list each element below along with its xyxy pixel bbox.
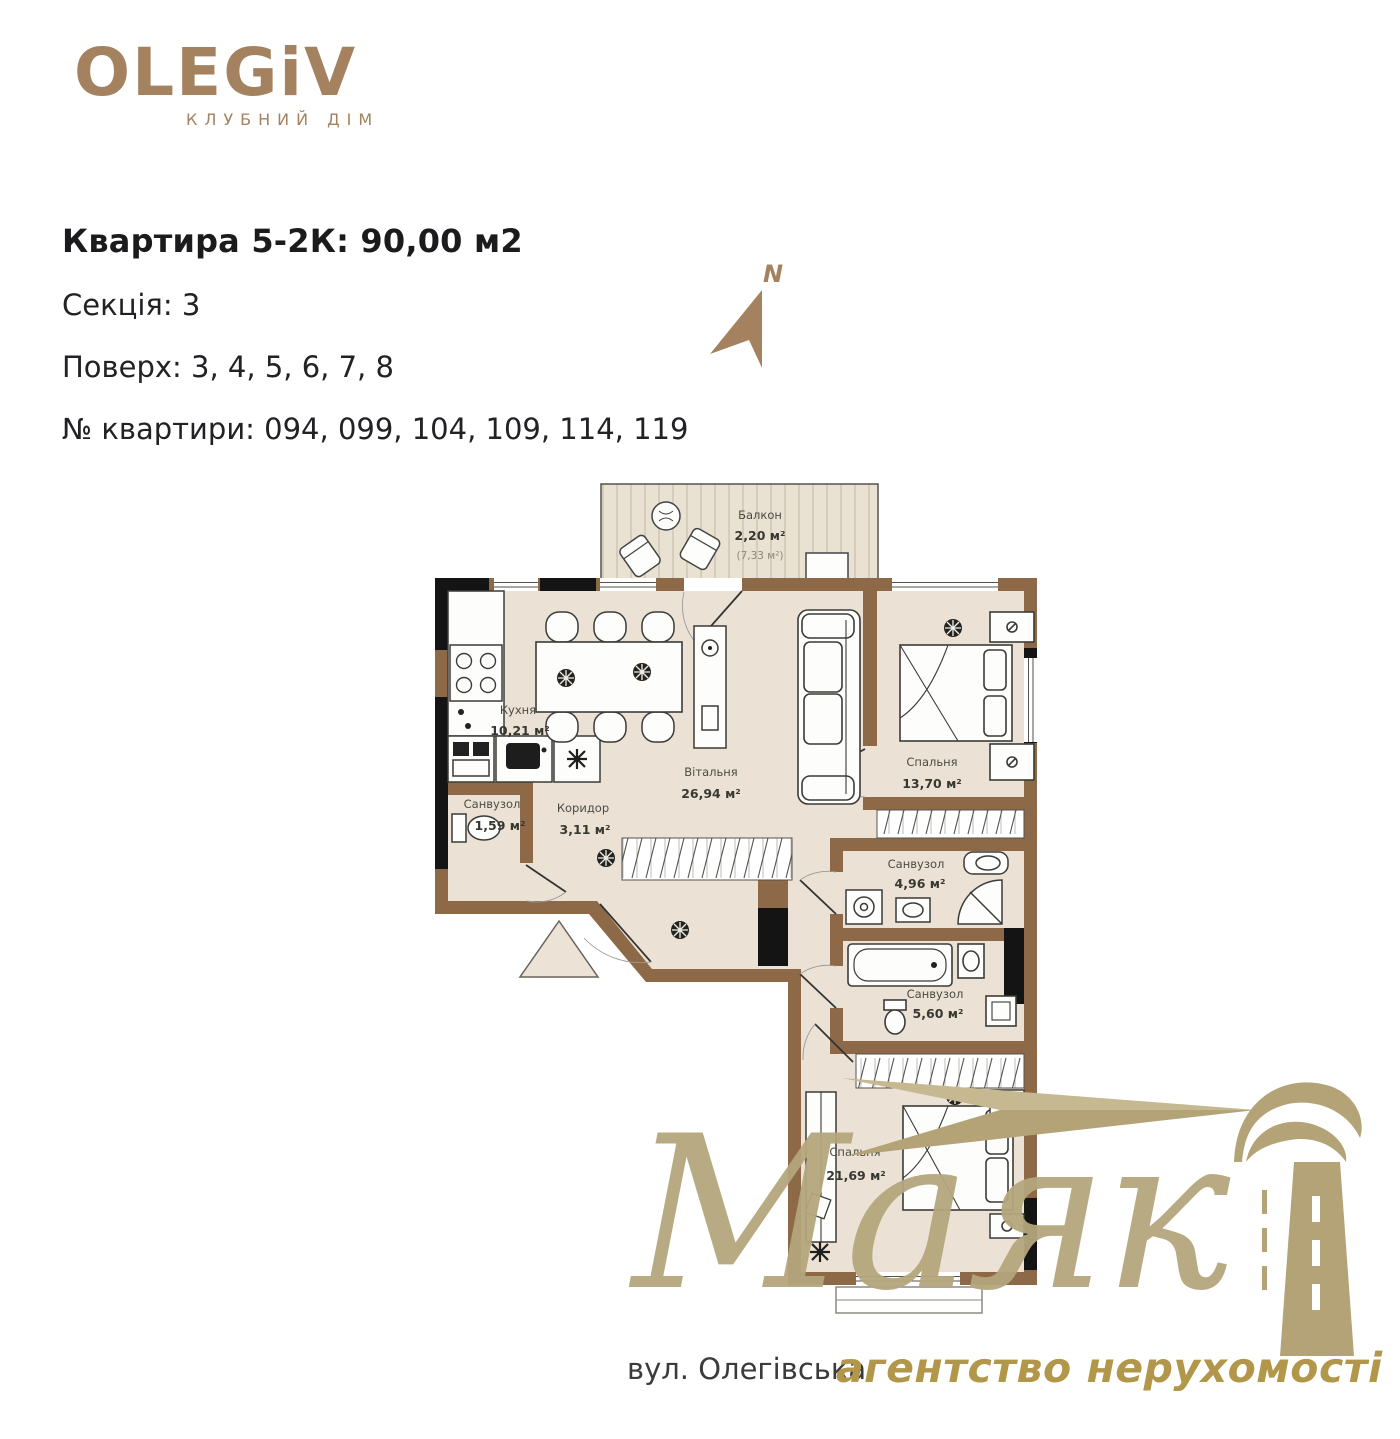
room-label: Вітальня: [684, 765, 737, 779]
ceiling-light-icon: [597, 849, 615, 867]
room-area: 26,94 м²: [681, 786, 741, 801]
room-label: Коридор: [557, 801, 609, 815]
balcony-table: [652, 502, 680, 530]
watermark-brand: Маяк: [632, 1108, 1226, 1320]
logo-brand: OLEGiV: [74, 40, 379, 106]
room-area-alt: (7,33 м²): [736, 550, 783, 562]
apartment-title: Квартира 5-2К: 90,00 м2: [62, 222, 688, 260]
room-label: Спальня: [906, 755, 957, 769]
room-area: 5,60 м²: [913, 1006, 964, 1021]
ceiling-light-icon: [671, 921, 689, 939]
room-area: 3,11 м²: [560, 822, 611, 837]
street-label: вул. Олегівська: [627, 1352, 866, 1386]
room-area: 1,59 м²: [475, 818, 526, 833]
apartment-section: Секція: 3: [62, 288, 688, 322]
room-label: Кухня: [500, 703, 536, 717]
north-arrow-icon: N: [695, 250, 820, 385]
logo: OLEGiV КЛУБНИЙ ДІМ: [74, 40, 379, 129]
plant-icon: [567, 749, 587, 769]
north-arrow-shape: [710, 290, 762, 368]
room-balcony: Балкон 2,20 м² (7,33 м²): [601, 484, 878, 591]
room-area: 13,70 м²: [902, 776, 962, 791]
room-area: 2,20 м²: [735, 528, 786, 543]
sofa: [798, 610, 860, 804]
room-area: 10,21 м²: [490, 723, 550, 738]
watermark-tagline: агентство нерухомості: [836, 1344, 1383, 1392]
dining-set: [536, 612, 682, 742]
apartment-floors: Поверх: 3, 4, 5, 6, 7, 8: [62, 350, 688, 384]
logo-subtitle: КЛУБНИЙ ДІМ: [74, 110, 379, 129]
room-label: Санвузол: [907, 987, 964, 1001]
entrance-marker: [520, 921, 598, 977]
balcony-bench: [806, 553, 848, 581]
north-label: N: [763, 260, 783, 288]
room-label: Санвузол: [464, 797, 521, 811]
ceiling-light-icon: [944, 619, 962, 637]
room-area: 4,96 м²: [895, 876, 946, 891]
room-label: Санвузол: [888, 857, 945, 871]
console-shelf: [694, 626, 726, 748]
apartment-numbers: № квартири: 094, 099, 104, 109, 114, 119: [62, 412, 688, 446]
apartment-info: Квартира 5-2К: 90,00 м2 Секція: 3 Поверх…: [62, 222, 688, 446]
room-label: Балкон: [738, 508, 782, 522]
